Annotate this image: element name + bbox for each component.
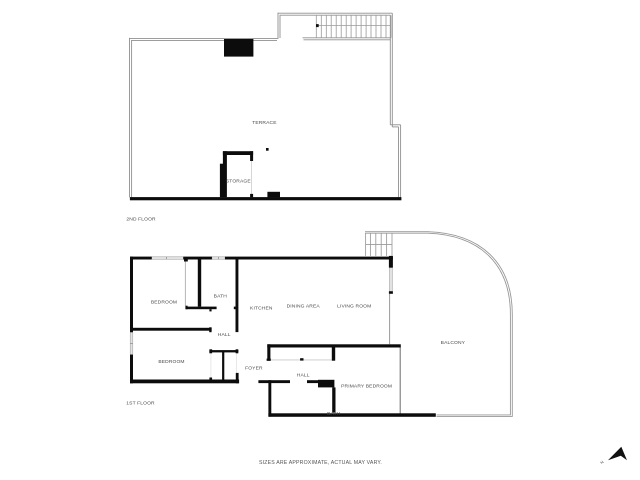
svg-text:BALCONY: BALCONY (441, 340, 466, 346)
svg-text:SIZES ARE APPROXIMATE, ACTUAL: SIZES ARE APPROXIMATE, ACTUAL MAY VARY. (259, 460, 382, 466)
svg-text:HALL: HALL (218, 332, 231, 338)
svg-text:HALL: HALL (297, 373, 310, 379)
svg-text:STORAGE: STORAGE (226, 179, 251, 185)
svg-text:2ND FLOOR: 2ND FLOOR (126, 217, 156, 223)
svg-text:BEDROOM: BEDROOM (151, 299, 177, 305)
svg-text:FOYER: FOYER (245, 365, 263, 371)
svg-text:LIVING ROOM: LIVING ROOM (337, 304, 371, 310)
svg-text:BATH: BATH (327, 411, 341, 417)
svg-text:BATH: BATH (214, 293, 228, 299)
svg-text:TERRACE: TERRACE (252, 120, 277, 126)
svg-text:1ST FLOOR: 1ST FLOOR (126, 401, 155, 407)
svg-text:DINING AREA: DINING AREA (287, 304, 321, 310)
svg-text:KITCHEN: KITCHEN (250, 305, 273, 311)
svg-text:BEDROOM: BEDROOM (158, 359, 184, 365)
svg-text:PRIMARY BEDROOM: PRIMARY BEDROOM (341, 384, 392, 390)
